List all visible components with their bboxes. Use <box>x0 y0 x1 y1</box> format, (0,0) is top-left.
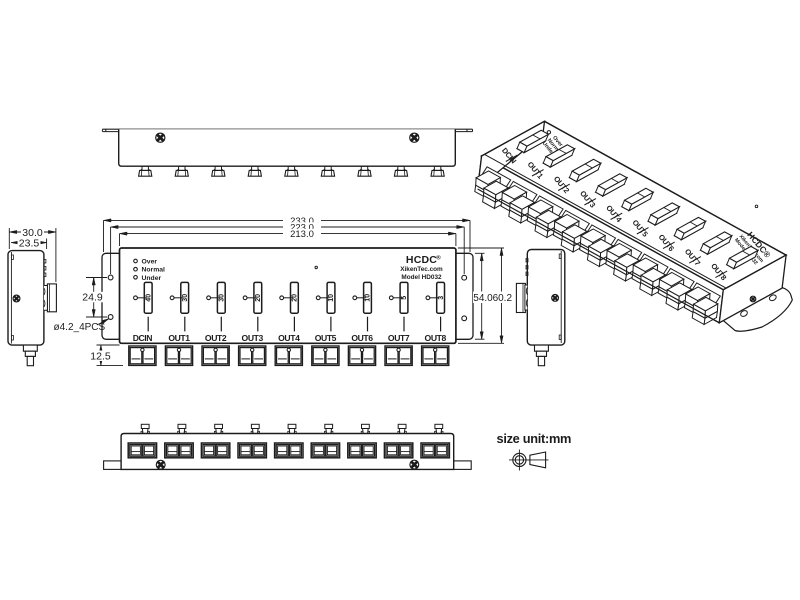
svg-text:24.9: 24.9 <box>82 292 103 304</box>
svg-text:OUT8: OUT8 <box>425 333 447 343</box>
svg-text:OUT2: OUT2 <box>205 333 227 343</box>
svg-text:30: 30 <box>219 294 226 302</box>
svg-text:OUT6: OUT6 <box>351 333 373 343</box>
svg-text:20: 20 <box>292 294 299 302</box>
svg-text:Normal: Normal <box>142 267 166 274</box>
svg-text:30: 30 <box>182 294 189 302</box>
svg-text:OUT1: OUT1 <box>168 333 190 343</box>
svg-text:Over: Over <box>142 259 158 266</box>
svg-text:10: 10 <box>365 294 372 302</box>
svg-text:HCDC: HCDC <box>406 254 437 266</box>
svg-text:®: ® <box>436 255 441 262</box>
svg-text:213.0: 213.0 <box>290 229 314 240</box>
svg-text:ø4.2_4PCS: ø4.2_4PCS <box>54 322 106 333</box>
svg-text:60.2: 60.2 <box>493 293 513 304</box>
svg-text:DCIN: DCIN <box>133 333 153 343</box>
svg-text:OUT3: OUT3 <box>242 333 264 343</box>
svg-text:OUT7: OUT7 <box>388 333 410 343</box>
svg-text:Under: Under <box>142 275 162 282</box>
svg-text:40: 40 <box>145 294 152 302</box>
svg-text:size unit:mm: size unit:mm <box>497 431 572 446</box>
svg-text:54.0: 54.0 <box>473 293 493 304</box>
svg-text:Model HD032: Model HD032 <box>401 274 442 281</box>
svg-text:OUT5: OUT5 <box>315 333 337 343</box>
svg-text:23.5: 23.5 <box>19 237 40 249</box>
svg-text:OUT4: OUT4 <box>278 333 300 343</box>
svg-text:XikenTec.com: XikenTec.com <box>400 266 443 273</box>
svg-text:10: 10 <box>328 294 335 302</box>
svg-text:20: 20 <box>255 294 262 302</box>
svg-text:12.5: 12.5 <box>90 350 111 362</box>
svg-text:5: 5 <box>401 296 408 300</box>
svg-text:3: 3 <box>438 296 445 300</box>
